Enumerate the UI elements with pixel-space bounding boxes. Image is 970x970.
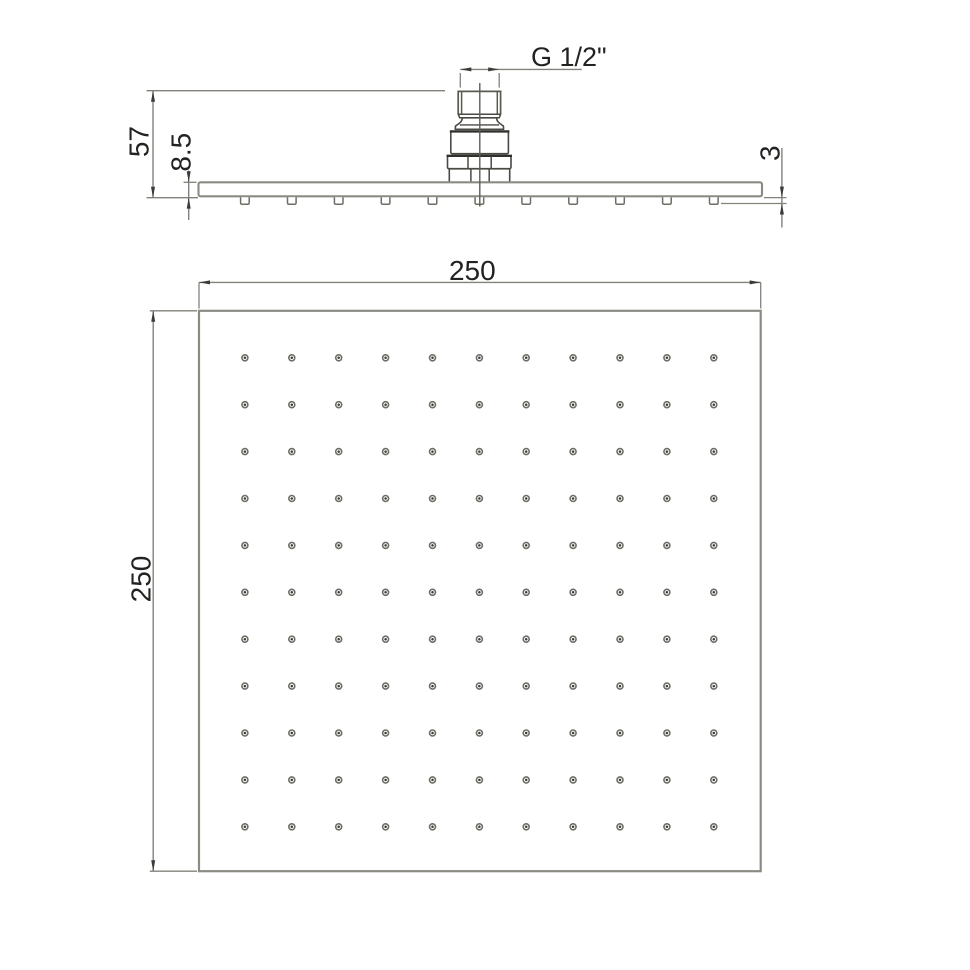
svg-text:8.5: 8.5	[166, 133, 197, 172]
svg-text:250: 250	[449, 255, 496, 286]
svg-text:3: 3	[755, 145, 786, 161]
svg-text:250: 250	[126, 556, 157, 603]
svg-text:57: 57	[124, 126, 155, 157]
svg-text:G 1/2": G 1/2"	[531, 42, 607, 72]
